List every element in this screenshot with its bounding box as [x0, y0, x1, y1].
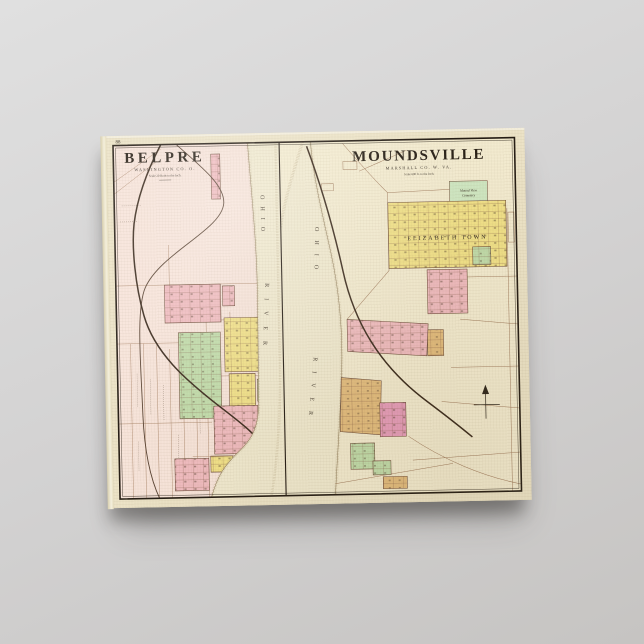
moundsville-title: MOUNDSVILLE: [352, 147, 485, 166]
belpre-river-label-ohio: OHIO: [259, 195, 266, 238]
moundsville-scale-note: Scale 600 ft. to the Inch.: [404, 172, 435, 177]
atlas-map: 88: [106, 128, 531, 508]
belpre-panel: OHIO RIVER BELPRE WASHINGTON CO. O. Scal…: [114, 143, 286, 499]
cemetery-label-line2: Cemetery: [462, 193, 476, 197]
map-sheet: 88: [106, 128, 531, 508]
moundsville-river-label-ohio: OHIO: [312, 227, 319, 278]
product-photo-background: 88: [0, 0, 644, 644]
cemetery-label-line1: Mound View: [459, 188, 478, 192]
belpre-scale-note: Scale 20 Rods to the Inch.: [149, 173, 182, 178]
belpre-title: BELPRE: [124, 149, 205, 167]
moundsville-panel: OHIO RIVER: [279, 138, 522, 496]
canvas-print: 88: [106, 128, 531, 508]
